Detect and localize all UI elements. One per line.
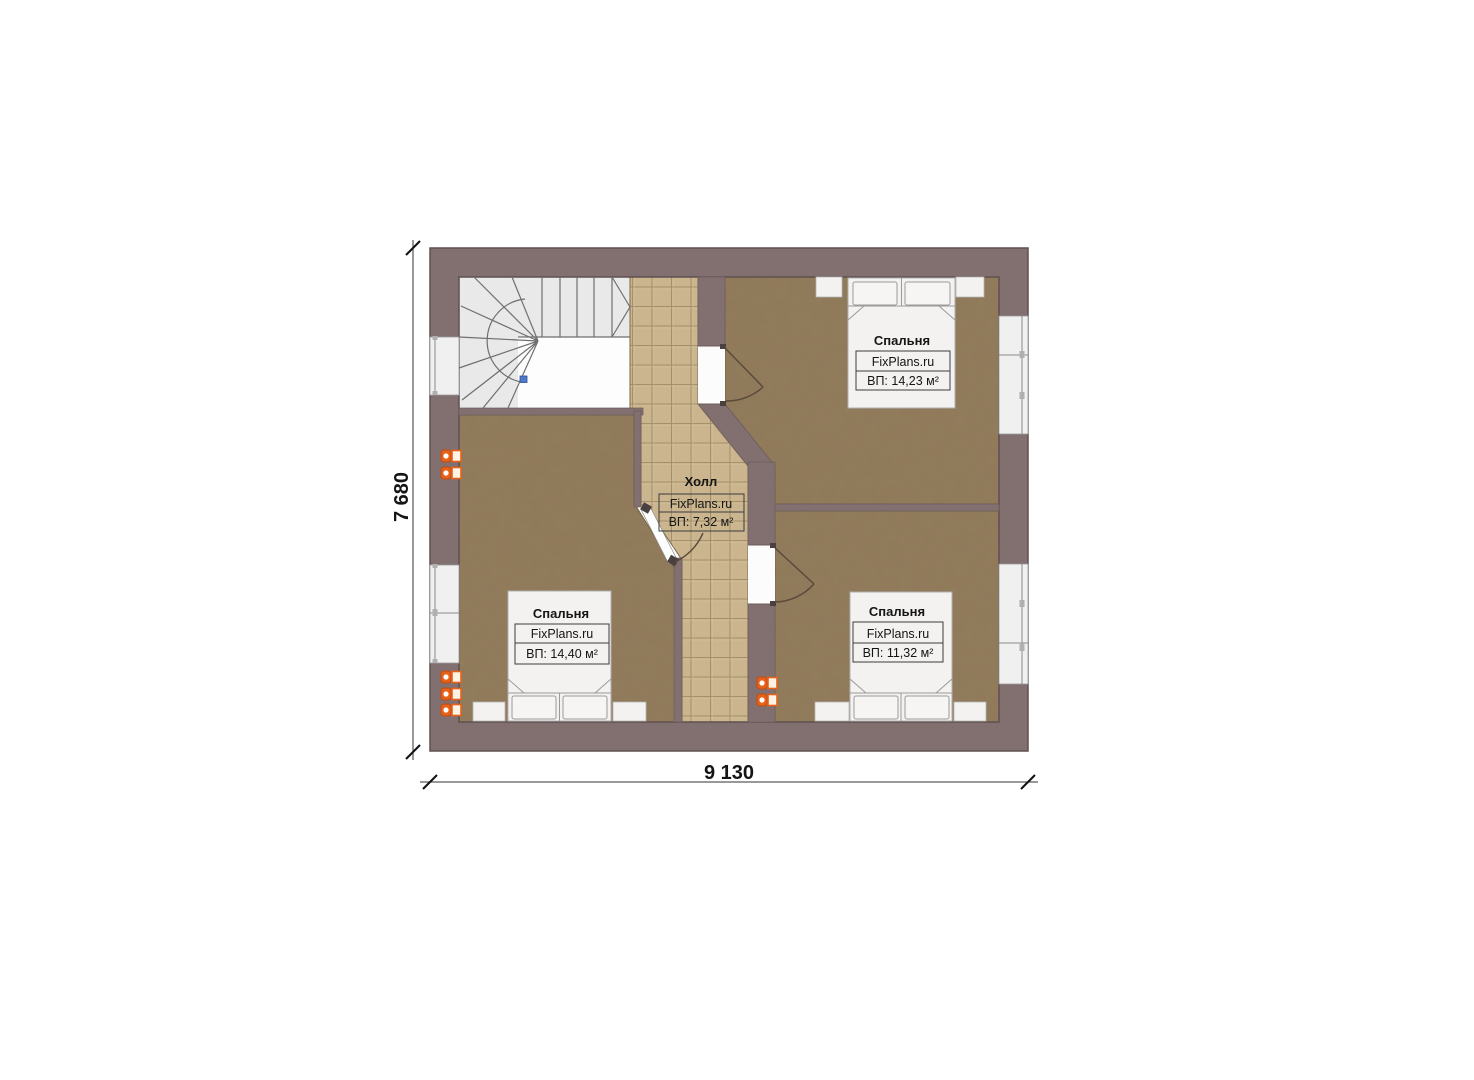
svg-text:Спальня: Спальня	[869, 604, 925, 619]
svg-text:ВП: 7,32 м²: ВП: 7,32 м²	[669, 515, 734, 529]
svg-text:7 680: 7 680	[391, 472, 413, 522]
svg-text:FixPlans.ru: FixPlans.ru	[670, 497, 733, 511]
svg-text:FixPlans.ru: FixPlans.ru	[531, 627, 594, 641]
svg-text:FixPlans.ru: FixPlans.ru	[867, 627, 930, 641]
svg-text:9 130: 9 130	[704, 762, 754, 784]
svg-text:ВП: 11,32 м²: ВП: 11,32 м²	[863, 646, 934, 660]
svg-text:ВП: 14,23 м²: ВП: 14,23 м²	[867, 374, 939, 388]
svg-text:ВП: 14,40 м²: ВП: 14,40 м²	[526, 647, 598, 661]
svg-text:Спальня: Спальня	[874, 333, 930, 348]
svg-text:Холл: Холл	[685, 474, 718, 489]
svg-text:FixPlans.ru: FixPlans.ru	[872, 355, 935, 369]
svg-text:Спальня: Спальня	[533, 606, 589, 621]
